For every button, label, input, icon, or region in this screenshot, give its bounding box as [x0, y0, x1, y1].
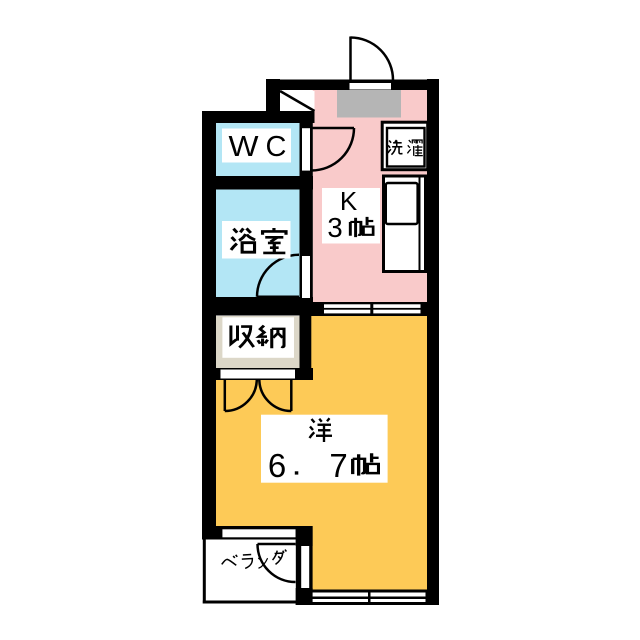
svg-text:C: C	[266, 131, 287, 163]
svg-text:W: W	[229, 131, 260, 163]
svg-text:6: 6	[268, 447, 286, 484]
svg-text:7: 7	[329, 447, 347, 484]
svg-text:3: 3	[327, 212, 342, 243]
